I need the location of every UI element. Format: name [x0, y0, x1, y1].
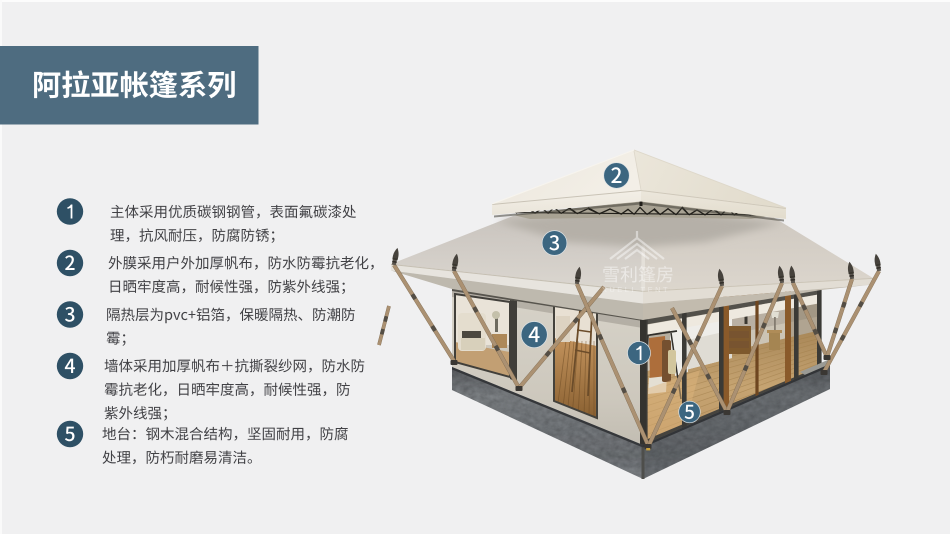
- svg-text:XUELI TENT: XUELI TENT: [602, 285, 670, 294]
